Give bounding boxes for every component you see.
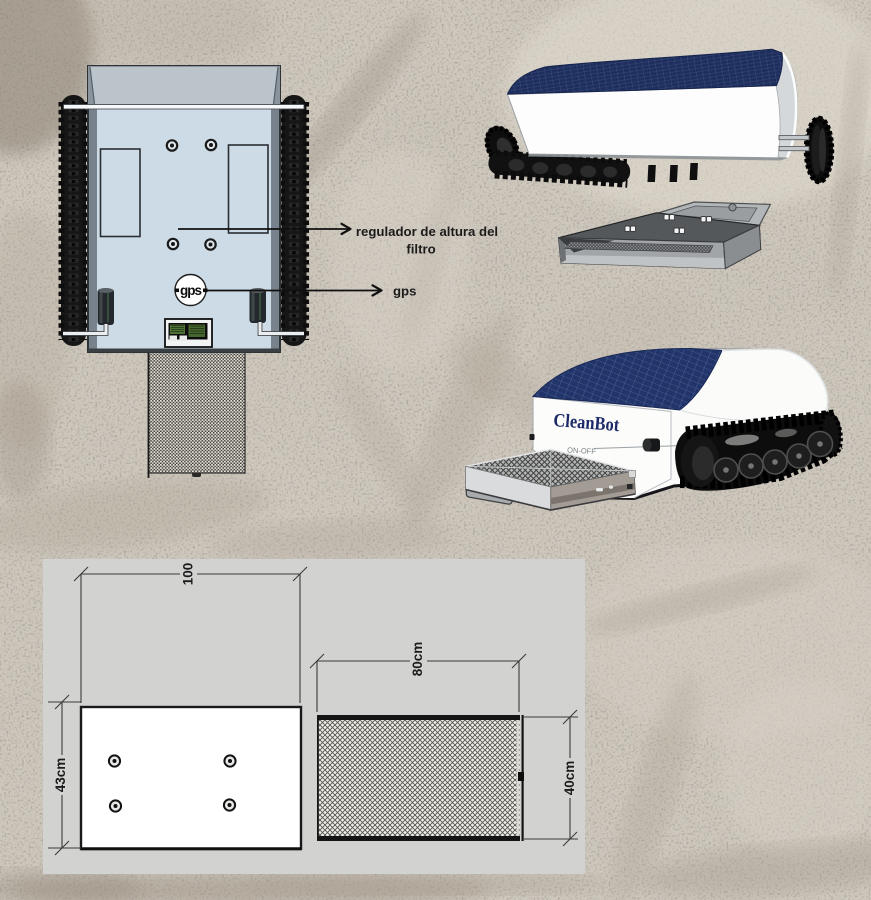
svg-text:gps: gps (393, 284, 416, 299)
svg-text:43cm: 43cm (53, 758, 68, 793)
svg-text:100: 100 (181, 563, 196, 586)
svg-text:40cm: 40cm (562, 761, 577, 796)
svg-text:80cm: 80cm (410, 642, 425, 677)
svg-text:filtro: filtro (406, 242, 435, 257)
svg-text:gps: gps (180, 283, 201, 298)
svg-text:regulador de altura del: regulador de altura del (356, 224, 498, 239)
